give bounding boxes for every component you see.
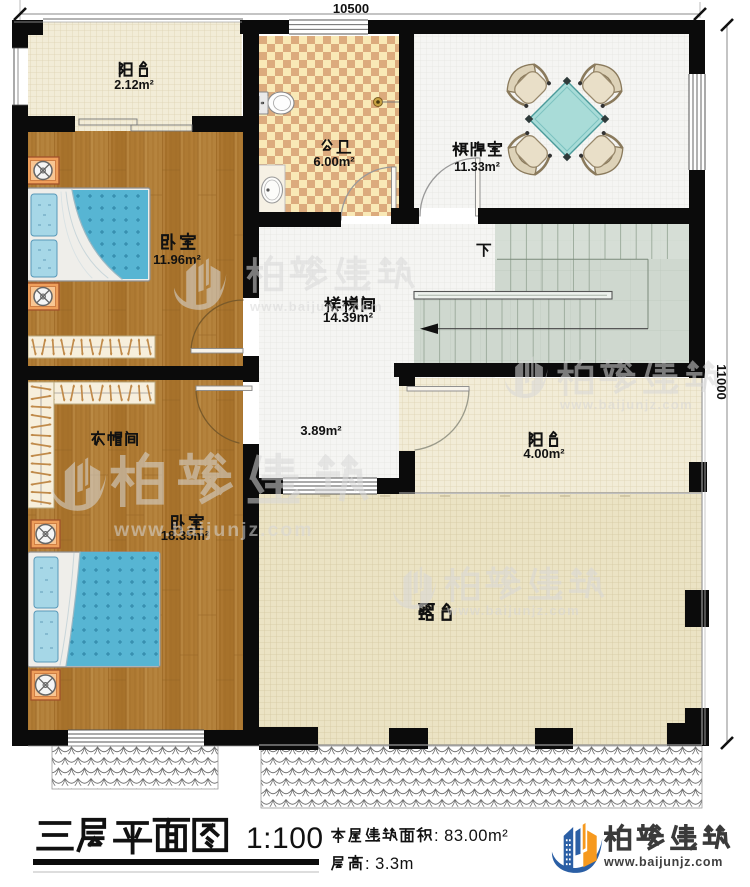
- svg-text:www.baijunjz.com: www.baijunjz.com: [113, 519, 314, 541]
- svg-text:1:100: 1:100: [246, 822, 324, 855]
- svg-text:www.baijunjz.com: www.baijunjz.com: [446, 603, 580, 618]
- svg-text:11000: 11000: [714, 364, 729, 399]
- svg-text:2.12m²: 2.12m²: [114, 78, 154, 92]
- svg-text:: 83.00m²: : 83.00m²: [434, 827, 508, 845]
- svg-text:3.89m²: 3.89m²: [300, 423, 342, 438]
- svg-text:: 3.3m: : 3.3m: [365, 855, 414, 873]
- svg-text:www.baijunjz.com: www.baijunjz.com: [559, 397, 693, 412]
- svg-text:10500: 10500: [333, 1, 369, 16]
- svg-text:6.00m²: 6.00m²: [313, 154, 355, 169]
- svg-text:4.00m²: 4.00m²: [523, 446, 565, 461]
- svg-text:www.baijunjz.com: www.baijunjz.com: [249, 299, 383, 314]
- svg-text:www.baijunjz.com: www.baijunjz.com: [603, 855, 723, 869]
- svg-text:11.33m²: 11.33m²: [454, 160, 500, 174]
